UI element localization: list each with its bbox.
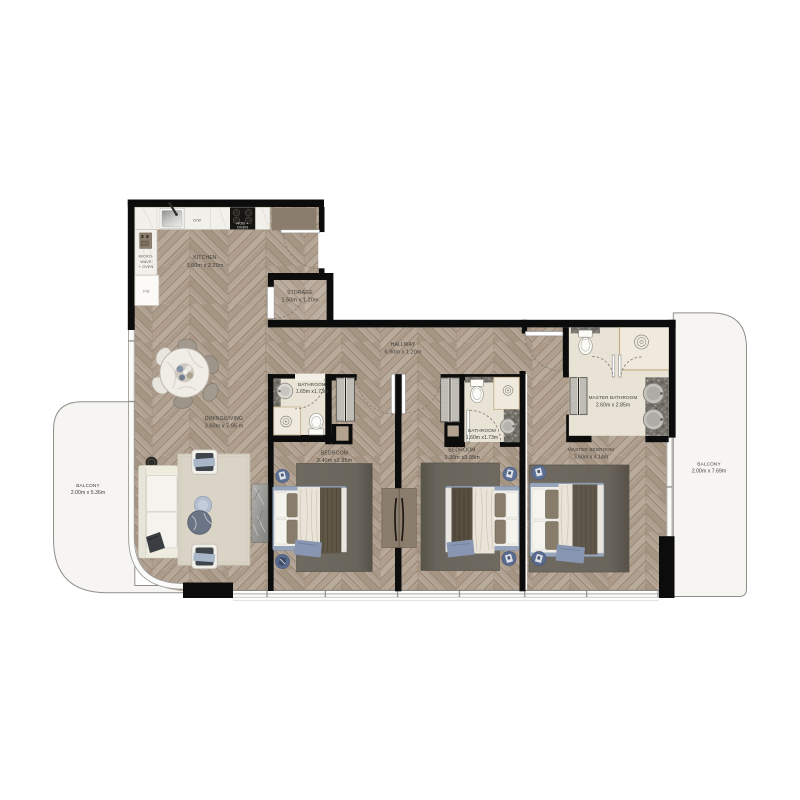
svg-text:3.60m x 7.95 m: 3.60m x 7.95 m	[205, 424, 244, 430]
svg-text:2.00m x 5.36m: 2.00m x 5.36m	[71, 490, 105, 496]
svg-text:MASTER BATHROOM: MASTER BATHROOM	[589, 395, 638, 400]
svg-text:3.40m x3.95m: 3.40m x3.95m	[317, 458, 353, 464]
svg-text:3.60m x 4.14m: 3.60m x 4.14m	[574, 455, 608, 461]
svg-text:MASTER BEDROOM: MASTER BEDROOM	[568, 447, 614, 452]
svg-text:2.60m x 2.85m: 2.60m x 2.85m	[596, 403, 630, 409]
svg-text:1.50m x 1.20m: 1.50m x 1.20m	[281, 298, 318, 304]
svg-text:BALCONY: BALCONY	[697, 462, 721, 467]
svg-text:MICRO-: MICRO-	[139, 255, 154, 259]
svg-text:KITCHEN: KITCHEN	[193, 255, 217, 261]
svg-text:WAVE: WAVE	[140, 260, 152, 264]
svg-text:BEDROOM: BEDROOM	[448, 448, 475, 454]
svg-text:HALLWAY: HALLWAY	[391, 342, 416, 348]
svg-text:BATHROOM: BATHROOM	[468, 428, 496, 433]
svg-text:BALCONY: BALCONY	[76, 483, 100, 488]
svg-text:1.60m x1.73m: 1.60m x1.73m	[466, 435, 498, 441]
svg-text:D/W: D/W	[193, 219, 201, 223]
svg-text:F/S: F/S	[143, 290, 150, 294]
svg-text:+ OVEN: + OVEN	[139, 265, 154, 269]
svg-text:3.60m x 2.20m: 3.60m x 2.20m	[186, 263, 223, 269]
svg-text:3.30m x3.95m: 3.30m x3.95m	[444, 455, 480, 461]
svg-text:BEDROOM: BEDROOM	[321, 451, 348, 457]
svg-text:2.00m x 7.69m: 2.00m x 7.69m	[692, 469, 726, 475]
svg-text:6.90m x 1.20m: 6.90m x 1.20m	[384, 350, 421, 356]
svg-text:OVEN: OVEN	[237, 226, 248, 230]
svg-text:DINING/LIVING: DINING/LIVING	[205, 416, 243, 422]
svg-text:BATHROOM: BATHROOM	[298, 382, 326, 387]
svg-text:STORAGE: STORAGE	[287, 290, 313, 296]
svg-text:1.65m x1.73m: 1.65m x1.73m	[296, 389, 328, 395]
